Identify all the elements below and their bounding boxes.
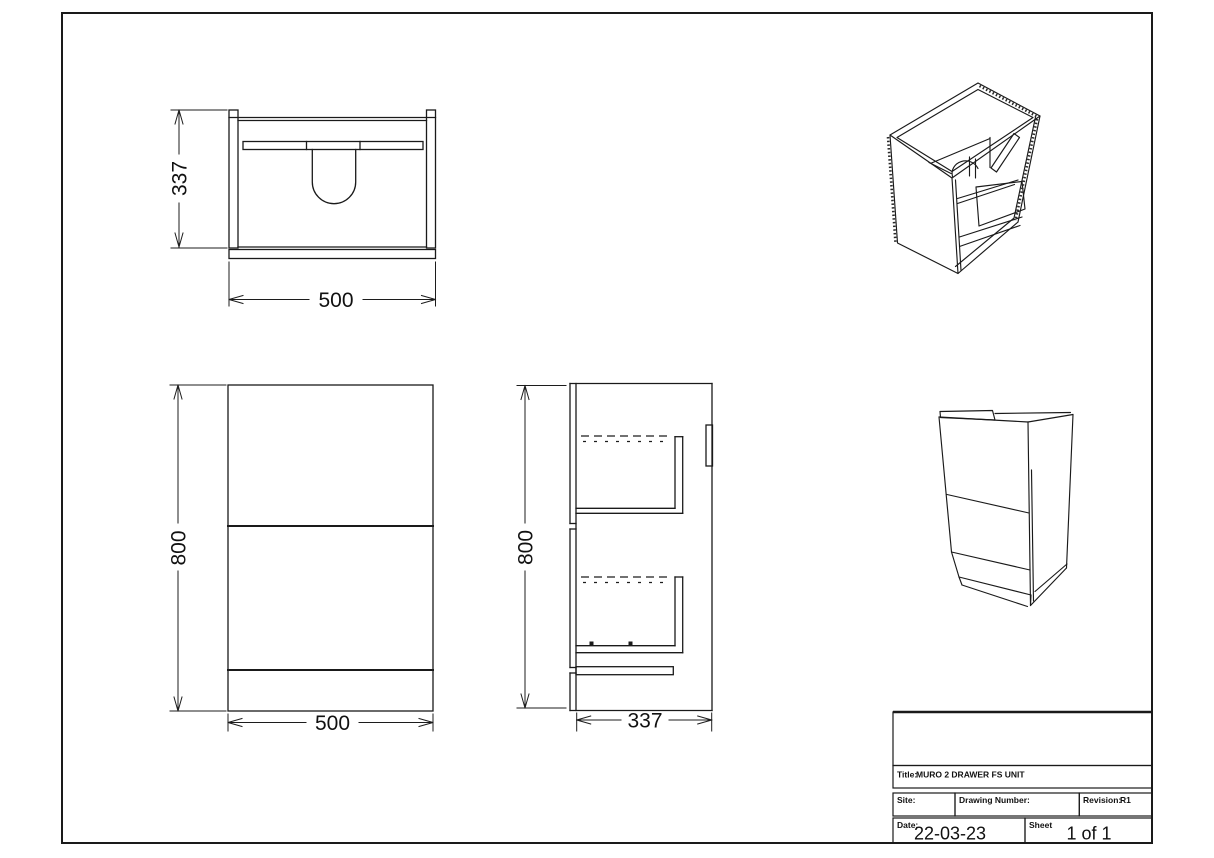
iso-unit-view <box>939 411 1073 607</box>
drawing-line <box>229 250 436 259</box>
drawing-line <box>956 219 1014 267</box>
drawing-line <box>1035 564 1067 592</box>
plan-width-dim-text: 500 <box>318 289 353 312</box>
plan-width-dimension: 500 <box>229 262 436 312</box>
drawing-line <box>427 110 436 248</box>
runner-clip <box>590 642 594 646</box>
drawing-line <box>228 385 433 711</box>
plan-view <box>229 110 436 259</box>
side-depth-dim-text: 337 <box>627 710 662 733</box>
runner-clip <box>629 642 633 646</box>
drawing-line <box>1028 415 1073 423</box>
drawer-divider-line <box>947 495 1029 514</box>
drawing-line <box>980 86 1038 117</box>
side-depth-dimension: 337 <box>577 710 712 733</box>
drawing-line <box>1031 595 1032 606</box>
drawing-line <box>1016 119 1038 221</box>
front-height-dimension: 800 <box>168 385 227 711</box>
drawing-sheet: 337 500 800 500 <box>0 0 1214 858</box>
sheet-label: Sheet <box>1029 820 1052 830</box>
plinth-line <box>952 552 1031 570</box>
front-width-dimension: 500 <box>228 712 433 735</box>
sheet-border <box>62 13 1152 843</box>
title-label: Title: <box>897 770 917 780</box>
drawing-line <box>995 413 1071 414</box>
upper-drawer-back-panel <box>991 134 1020 173</box>
lower-drawer-back-panel <box>976 182 1025 227</box>
drawing-line <box>932 139 991 164</box>
upper-drawer-section <box>576 436 683 513</box>
basin-waste-cutout <box>312 150 355 204</box>
side-height-dimension: 800 <box>515 386 567 709</box>
title-block: Title: MURO 2 DRAWER FS UNIT Site: Drawi… <box>893 712 1152 844</box>
front-width-dim-text: 500 <box>315 712 350 735</box>
date-value: 22-03-23 <box>914 824 986 844</box>
front-height-dim-text: 800 <box>168 530 191 565</box>
iso-carcass-view <box>888 83 1040 274</box>
side-height-dim-text: 800 <box>515 530 538 565</box>
title-value: MURO 2 DRAWER FS UNIT <box>916 770 1025 780</box>
drawing-line <box>939 417 1028 422</box>
drawing-line <box>956 180 962 271</box>
drawing-line <box>960 226 1021 247</box>
plan-depth-dimension: 337 <box>169 110 228 248</box>
cad-drawing-canvas: 337 500 800 500 <box>0 0 1214 858</box>
drawing-line <box>229 110 238 248</box>
plan-depth-dim-text: 337 <box>169 161 192 196</box>
drawing-line <box>1067 415 1074 569</box>
front-view <box>228 385 433 711</box>
drawing-line <box>958 185 1015 204</box>
revision-label: Revision: <box>1083 795 1121 805</box>
drawing-line <box>1032 470 1034 601</box>
drawing-line <box>243 142 423 150</box>
logo-box <box>893 712 1152 766</box>
revision-value: R1 <box>1120 795 1131 805</box>
site-label: Site: <box>897 795 916 805</box>
drawing-line <box>1031 568 1067 606</box>
side-section-view <box>570 384 713 711</box>
plinth-rail <box>576 667 673 675</box>
drawing-number-label: Drawing Number: <box>959 795 1030 805</box>
drawing-line <box>1018 116 1040 222</box>
drawing-line <box>959 577 1031 595</box>
drawing-line <box>1028 422 1031 606</box>
lower-drawer-section <box>576 577 683 653</box>
drawing-line <box>952 552 960 577</box>
drawing-line <box>962 585 1028 607</box>
sheet-value: 1 of 1 <box>1066 824 1111 844</box>
drawing-line <box>939 417 952 552</box>
